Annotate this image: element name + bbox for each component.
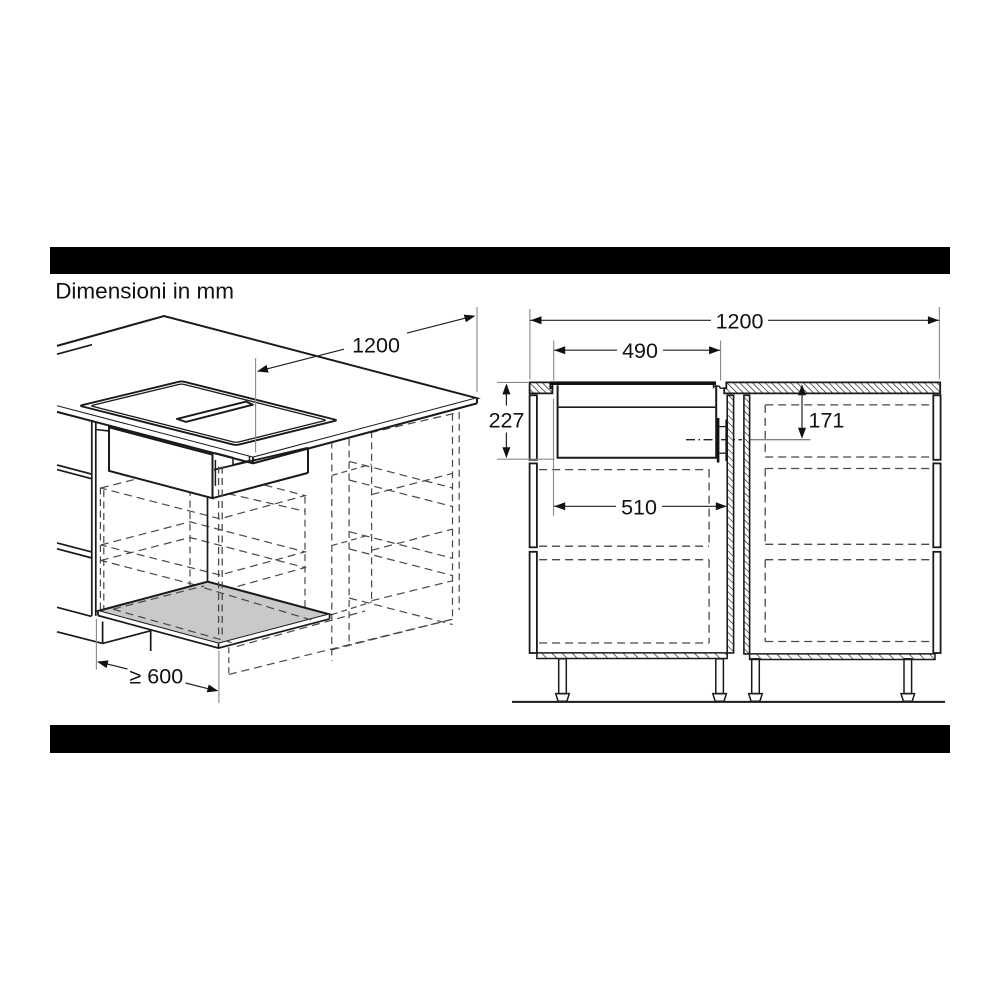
svg-text:171: 171 [809, 409, 845, 433]
svg-text:227: 227 [489, 408, 525, 432]
svg-text:Dimensioni in mm: Dimensioni in mm [55, 279, 234, 304]
svg-text:490: 490 [622, 339, 658, 363]
svg-text:1200: 1200 [352, 334, 400, 358]
svg-text:≥ 600: ≥ 600 [130, 665, 184, 689]
svg-text:1200: 1200 [716, 309, 764, 333]
svg-text:510: 510 [621, 495, 657, 519]
